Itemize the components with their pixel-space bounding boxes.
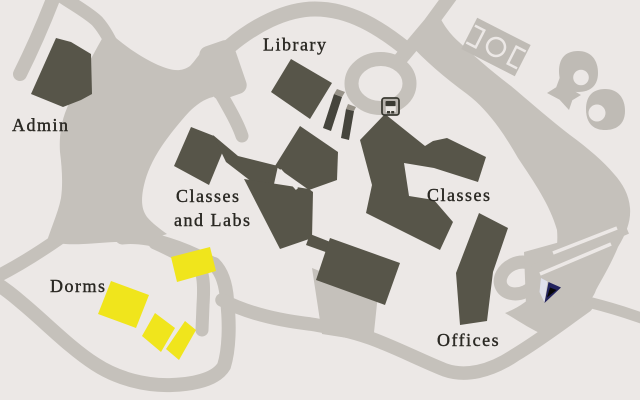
svg-text:Admin: Admin xyxy=(12,115,70,135)
svg-text:and Labs: and Labs xyxy=(174,210,251,230)
svg-text:Classes: Classes xyxy=(176,186,241,206)
svg-text:Dorms: Dorms xyxy=(50,276,107,296)
svg-text:Library: Library xyxy=(263,35,327,55)
svg-text:Classes: Classes xyxy=(427,185,492,205)
svg-text:Offices: Offices xyxy=(437,330,500,350)
